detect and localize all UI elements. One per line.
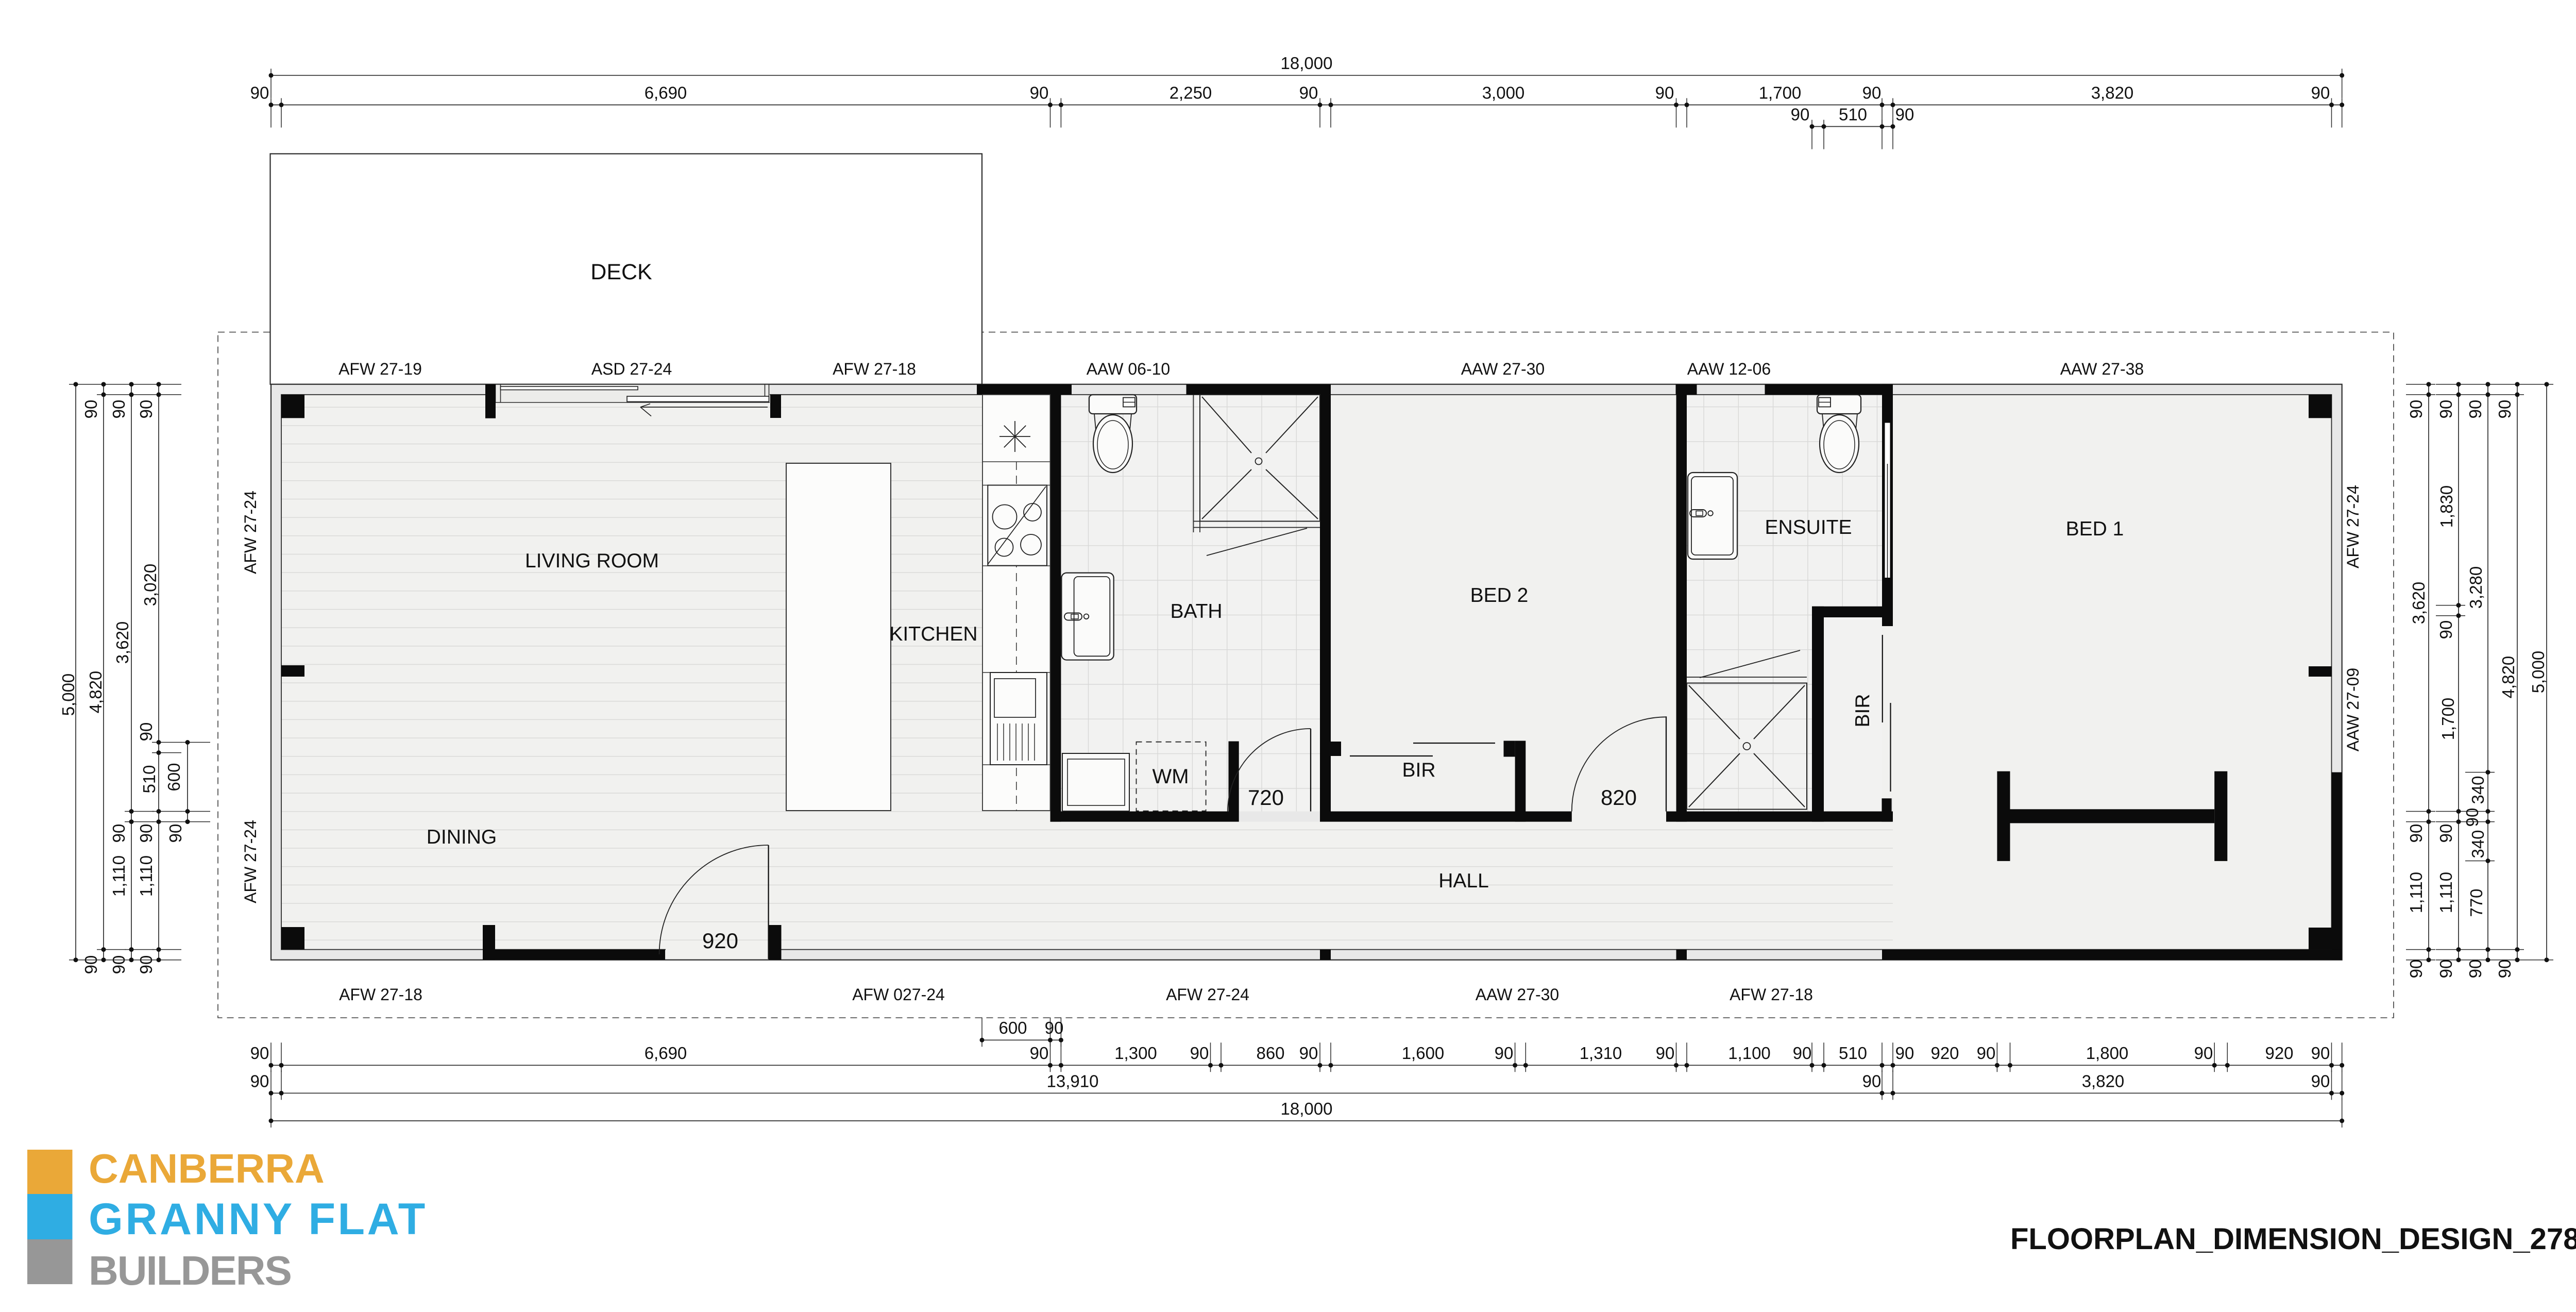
svg-text:BED 2: BED 2 (1470, 584, 1529, 607)
svg-text:90: 90 (1190, 1044, 1209, 1063)
svg-text:90: 90 (2406, 960, 2426, 979)
svg-text:340: 340 (2468, 776, 2487, 804)
svg-text:90: 90 (137, 955, 156, 974)
svg-text:90: 90 (1299, 83, 1318, 103)
svg-text:90: 90 (2311, 83, 2330, 103)
svg-text:90: 90 (81, 955, 100, 974)
svg-text:90: 90 (1655, 83, 1674, 103)
svg-text:90: 90 (2495, 960, 2514, 979)
svg-text:90: 90 (109, 400, 128, 419)
svg-text:920: 920 (2265, 1044, 2293, 1063)
svg-text:1,110: 1,110 (137, 855, 156, 897)
svg-text:90: 90 (1030, 83, 1049, 103)
svg-text:90: 90 (2466, 400, 2485, 419)
svg-text:90: 90 (2436, 824, 2455, 843)
svg-text:2,250: 2,250 (1170, 83, 1212, 103)
svg-text:1,600: 1,600 (1402, 1044, 1445, 1063)
svg-text:BUILDERS: BUILDERS (89, 1248, 291, 1293)
svg-text:AAW 27-30: AAW 27-30 (1476, 985, 1559, 1004)
svg-text:920: 920 (1930, 1044, 1959, 1063)
svg-text:90: 90 (1862, 83, 1882, 103)
svg-text:1,110: 1,110 (2406, 872, 2426, 913)
svg-text:720: 720 (1248, 785, 1284, 810)
svg-text:90: 90 (1495, 1044, 1514, 1063)
svg-text:4,820: 4,820 (2499, 656, 2518, 699)
svg-text:AFW 27-19: AFW 27-19 (338, 360, 422, 378)
svg-text:510: 510 (1839, 1044, 1867, 1063)
svg-text:AFW 27-24: AFW 27-24 (2344, 485, 2362, 568)
svg-text:90: 90 (1299, 1044, 1318, 1063)
svg-text:AAW 27-30: AAW 27-30 (1461, 360, 1545, 378)
svg-text:90: 90 (2495, 400, 2514, 419)
svg-text:90: 90 (2436, 960, 2455, 979)
svg-text:90: 90 (1656, 1044, 1675, 1063)
svg-text:1,100: 1,100 (1728, 1044, 1771, 1063)
svg-text:600: 600 (998, 1018, 1027, 1037)
svg-text:90: 90 (2311, 1072, 2330, 1091)
svg-text:90: 90 (137, 722, 156, 742)
svg-text:90: 90 (2406, 824, 2426, 843)
svg-text:AFW 27-18: AFW 27-18 (833, 360, 916, 378)
svg-text:AFW 27-24: AFW 27-24 (241, 820, 260, 903)
svg-text:3,280: 3,280 (2466, 566, 2485, 609)
svg-text:90: 90 (2436, 400, 2455, 419)
svg-text:1,830: 1,830 (2437, 485, 2456, 528)
svg-text:AFW 27-18: AFW 27-18 (1730, 985, 1813, 1004)
svg-text:90: 90 (1045, 1018, 1064, 1037)
svg-text:90: 90 (250, 1044, 269, 1063)
svg-text:3,820: 3,820 (2082, 1072, 2125, 1091)
svg-text:AAW 06-10: AAW 06-10 (1087, 360, 1170, 378)
svg-text:90: 90 (2194, 1044, 2213, 1063)
svg-text:AFW 27-24: AFW 27-24 (1166, 985, 1249, 1004)
svg-text:AFW 27-24: AFW 27-24 (241, 491, 260, 574)
svg-text:AAW 27-09: AAW 27-09 (2344, 668, 2362, 751)
svg-text:90: 90 (1895, 105, 1914, 124)
svg-text:FLOORPLAN_DIMENSION_DESIGN_278: FLOORPLAN_DIMENSION_DESIGN_278 (2010, 1222, 2576, 1256)
svg-text:BIR: BIR (1402, 759, 1435, 781)
svg-text:90: 90 (166, 824, 185, 843)
svg-text:4,820: 4,820 (86, 671, 105, 714)
svg-text:90: 90 (2436, 620, 2455, 640)
svg-text:920: 920 (702, 929, 738, 953)
svg-text:1,110: 1,110 (2436, 872, 2455, 913)
svg-text:3,620: 3,620 (113, 621, 132, 664)
svg-text:90: 90 (137, 400, 156, 419)
svg-text:90: 90 (137, 824, 156, 843)
svg-text:LIVING ROOM: LIVING ROOM (525, 550, 659, 572)
svg-text:770: 770 (2467, 888, 2486, 917)
svg-text:18,000: 18,000 (1281, 1099, 1333, 1118)
svg-text:3,820: 3,820 (2091, 83, 2134, 103)
svg-text:1,310: 1,310 (1580, 1044, 1622, 1063)
svg-text:90: 90 (250, 1072, 269, 1091)
svg-text:13,910: 13,910 (1047, 1072, 1099, 1091)
svg-text:1,700: 1,700 (2438, 698, 2458, 741)
svg-text:90: 90 (1793, 1044, 1812, 1063)
svg-text:ENSUITE: ENSUITE (1765, 516, 1852, 539)
svg-text:AAW 27-38: AAW 27-38 (2060, 360, 2144, 378)
svg-text:BATH: BATH (1170, 600, 1222, 623)
svg-text:6,690: 6,690 (645, 1044, 687, 1063)
svg-text:GRANNY FLAT: GRANNY FLAT (89, 1195, 428, 1244)
svg-text:HALL: HALL (1438, 870, 1489, 892)
svg-text:WM: WM (1152, 765, 1189, 788)
svg-text:90: 90 (2406, 400, 2426, 419)
svg-text:90: 90 (1895, 1044, 1914, 1063)
svg-text:18,000: 18,000 (1281, 54, 1333, 73)
svg-text:90: 90 (2466, 960, 2485, 979)
svg-text:1,800: 1,800 (2086, 1044, 2129, 1063)
svg-text:90: 90 (1791, 105, 1810, 124)
svg-text:AFW 027-24: AFW 027-24 (852, 985, 945, 1004)
svg-text:3,620: 3,620 (2409, 582, 2428, 625)
svg-text:5,000: 5,000 (2529, 651, 2548, 694)
svg-text:90: 90 (109, 955, 128, 974)
svg-text:90: 90 (109, 824, 128, 843)
svg-text:600: 600 (164, 763, 183, 791)
svg-text:1,110: 1,110 (109, 855, 128, 897)
svg-text:KITCHEN: KITCHEN (889, 623, 977, 645)
svg-text:ASD 27-24: ASD 27-24 (591, 360, 672, 378)
svg-text:90: 90 (81, 400, 100, 419)
svg-text:90: 90 (2463, 808, 2482, 827)
svg-text:6,690: 6,690 (645, 83, 687, 103)
svg-text:340: 340 (2468, 830, 2487, 858)
svg-text:BED 1: BED 1 (2066, 518, 2124, 540)
svg-text:3,020: 3,020 (141, 564, 160, 607)
svg-text:BIR: BIR (1852, 694, 1874, 727)
svg-text:90: 90 (250, 83, 269, 103)
svg-text:90: 90 (2311, 1044, 2330, 1063)
svg-text:820: 820 (1601, 785, 1637, 810)
svg-text:90: 90 (1977, 1044, 1996, 1063)
svg-text:CANBERRA: CANBERRA (89, 1146, 325, 1191)
svg-text:DECK: DECK (590, 260, 652, 284)
svg-text:AFW 27-18: AFW 27-18 (339, 985, 422, 1004)
svg-text:90: 90 (1030, 1044, 1049, 1063)
svg-text:510: 510 (1839, 105, 1867, 124)
svg-text:3,000: 3,000 (1482, 83, 1525, 103)
svg-text:510: 510 (140, 765, 159, 793)
svg-text:860: 860 (1256, 1044, 1284, 1063)
svg-text:90: 90 (1862, 1072, 1882, 1091)
svg-text:DINING: DINING (427, 826, 497, 848)
svg-text:1,300: 1,300 (1114, 1044, 1157, 1063)
svg-text:5,000: 5,000 (59, 674, 78, 716)
svg-text:AAW 12-06: AAW 12-06 (1687, 360, 1771, 378)
svg-text:1,700: 1,700 (1759, 83, 1802, 103)
